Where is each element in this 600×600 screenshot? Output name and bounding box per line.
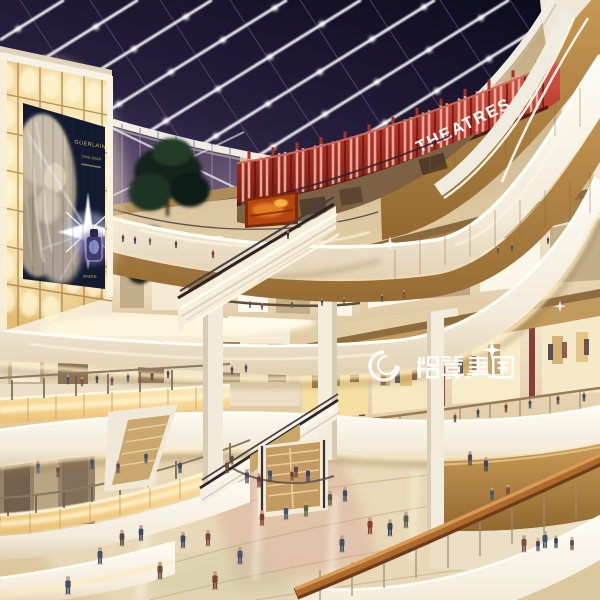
svg-text:PARIS: PARIS [83,274,96,279]
